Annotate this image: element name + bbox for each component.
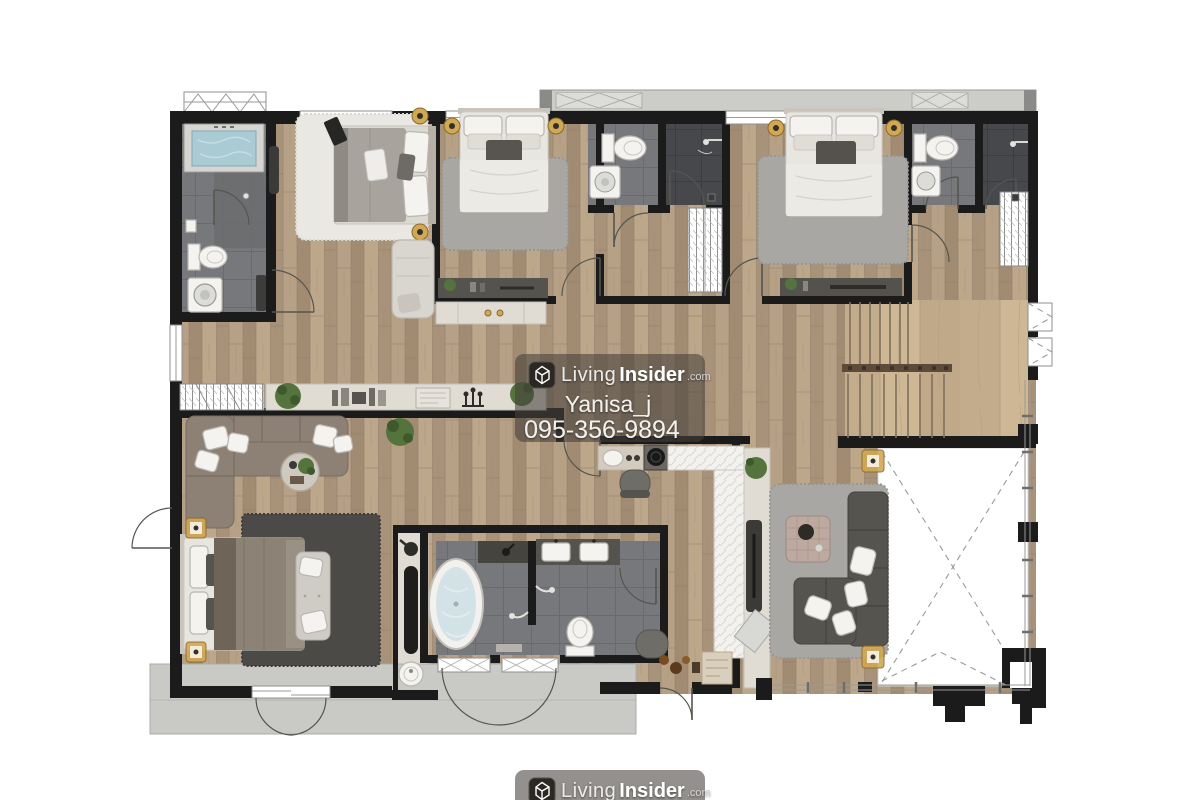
foot-bench (296, 552, 330, 640)
dresser-console (438, 278, 548, 298)
brand-light: Living (561, 780, 616, 800)
double-sink-counter (536, 539, 620, 565)
jacuzzi-pool (184, 124, 264, 172)
hatched-cabinet (180, 384, 264, 410)
downlight-icon (862, 450, 884, 472)
shower-zone (214, 166, 266, 248)
washing-machine-icon (912, 166, 940, 196)
folding-window (184, 92, 266, 112)
bed-horizontal (334, 126, 436, 224)
bar-stool (620, 470, 650, 498)
watermark-phone: 095-356-9894 (524, 416, 680, 444)
round-coffee-table (281, 453, 319, 491)
cooktop-icon (644, 445, 668, 470)
downlight-icon (186, 518, 206, 538)
decor-rack (269, 146, 279, 194)
bath-mat (496, 644, 522, 652)
potted-plant-icon (745, 457, 767, 479)
downlight-icon (186, 642, 206, 662)
ledge-cap-left (540, 90, 552, 111)
downlight-icon (862, 646, 884, 668)
brand-bold: Insider (619, 364, 685, 386)
pantry-counter-top (668, 446, 744, 470)
floor-plan-page: LivingInsider.com Yanisa_j 095-356-9894 … (0, 0, 1200, 800)
brand-suffix: .com (687, 787, 711, 799)
corner-column-core (1010, 662, 1032, 688)
hall-console (180, 382, 546, 410)
wall-hung-vanity (478, 541, 528, 563)
toilet-icon (602, 134, 646, 162)
brand-suffix: .com (687, 371, 711, 383)
toilet-icon (188, 244, 227, 270)
shower-head-icon (243, 193, 249, 199)
potted-plant-icon (386, 418, 414, 446)
toilet-icon (566, 617, 594, 656)
knob (626, 455, 632, 461)
brand-bold: Insider (619, 780, 685, 800)
shower2-floor (666, 124, 722, 205)
bar-stool (636, 630, 668, 658)
livinginsider-logo-icon (529, 778, 555, 800)
bed-vertical (784, 108, 884, 216)
marble-bench (436, 302, 546, 324)
floor-plan-image: LivingInsider.com Yanisa_j 095-356-9894 … (0, 0, 1200, 800)
livinginsider-logo-icon (529, 362, 555, 388)
wardrobe-icon (1000, 192, 1028, 266)
watermark-username: Yanisa_j (565, 391, 652, 417)
chaise-lounge (392, 240, 434, 318)
tv-console (780, 278, 902, 296)
lamp-center (417, 113, 423, 119)
toilet-icon (914, 134, 958, 162)
walkin-closet (688, 208, 722, 292)
washing-machine-icon (590, 166, 620, 198)
knob (634, 455, 640, 461)
potted-plant-icon (275, 383, 301, 409)
master-bed (180, 534, 304, 654)
ledge-cap-right (1024, 90, 1036, 111)
sliding-door-bedroom (252, 686, 330, 698)
ottoman-coffee-table (786, 516, 830, 562)
marble-console (266, 384, 546, 410)
watermark: LivingInsider.com Yanisa_j 095-356-9894 (515, 354, 711, 444)
watermark-partial-bottom: LivingInsider.com (515, 770, 711, 800)
round-basin (399, 662, 423, 686)
tray-decor (702, 652, 732, 684)
small-sink (186, 220, 196, 232)
bed-vertical (458, 108, 550, 212)
bath-shelf (256, 275, 266, 311)
washing-machine-icon (188, 278, 222, 312)
lamp-center (417, 229, 423, 235)
kitchen-sink-icon (603, 450, 623, 466)
brand-light: Living (561, 364, 616, 386)
wall-tv (404, 566, 418, 654)
freestanding-bathtub (429, 559, 483, 649)
